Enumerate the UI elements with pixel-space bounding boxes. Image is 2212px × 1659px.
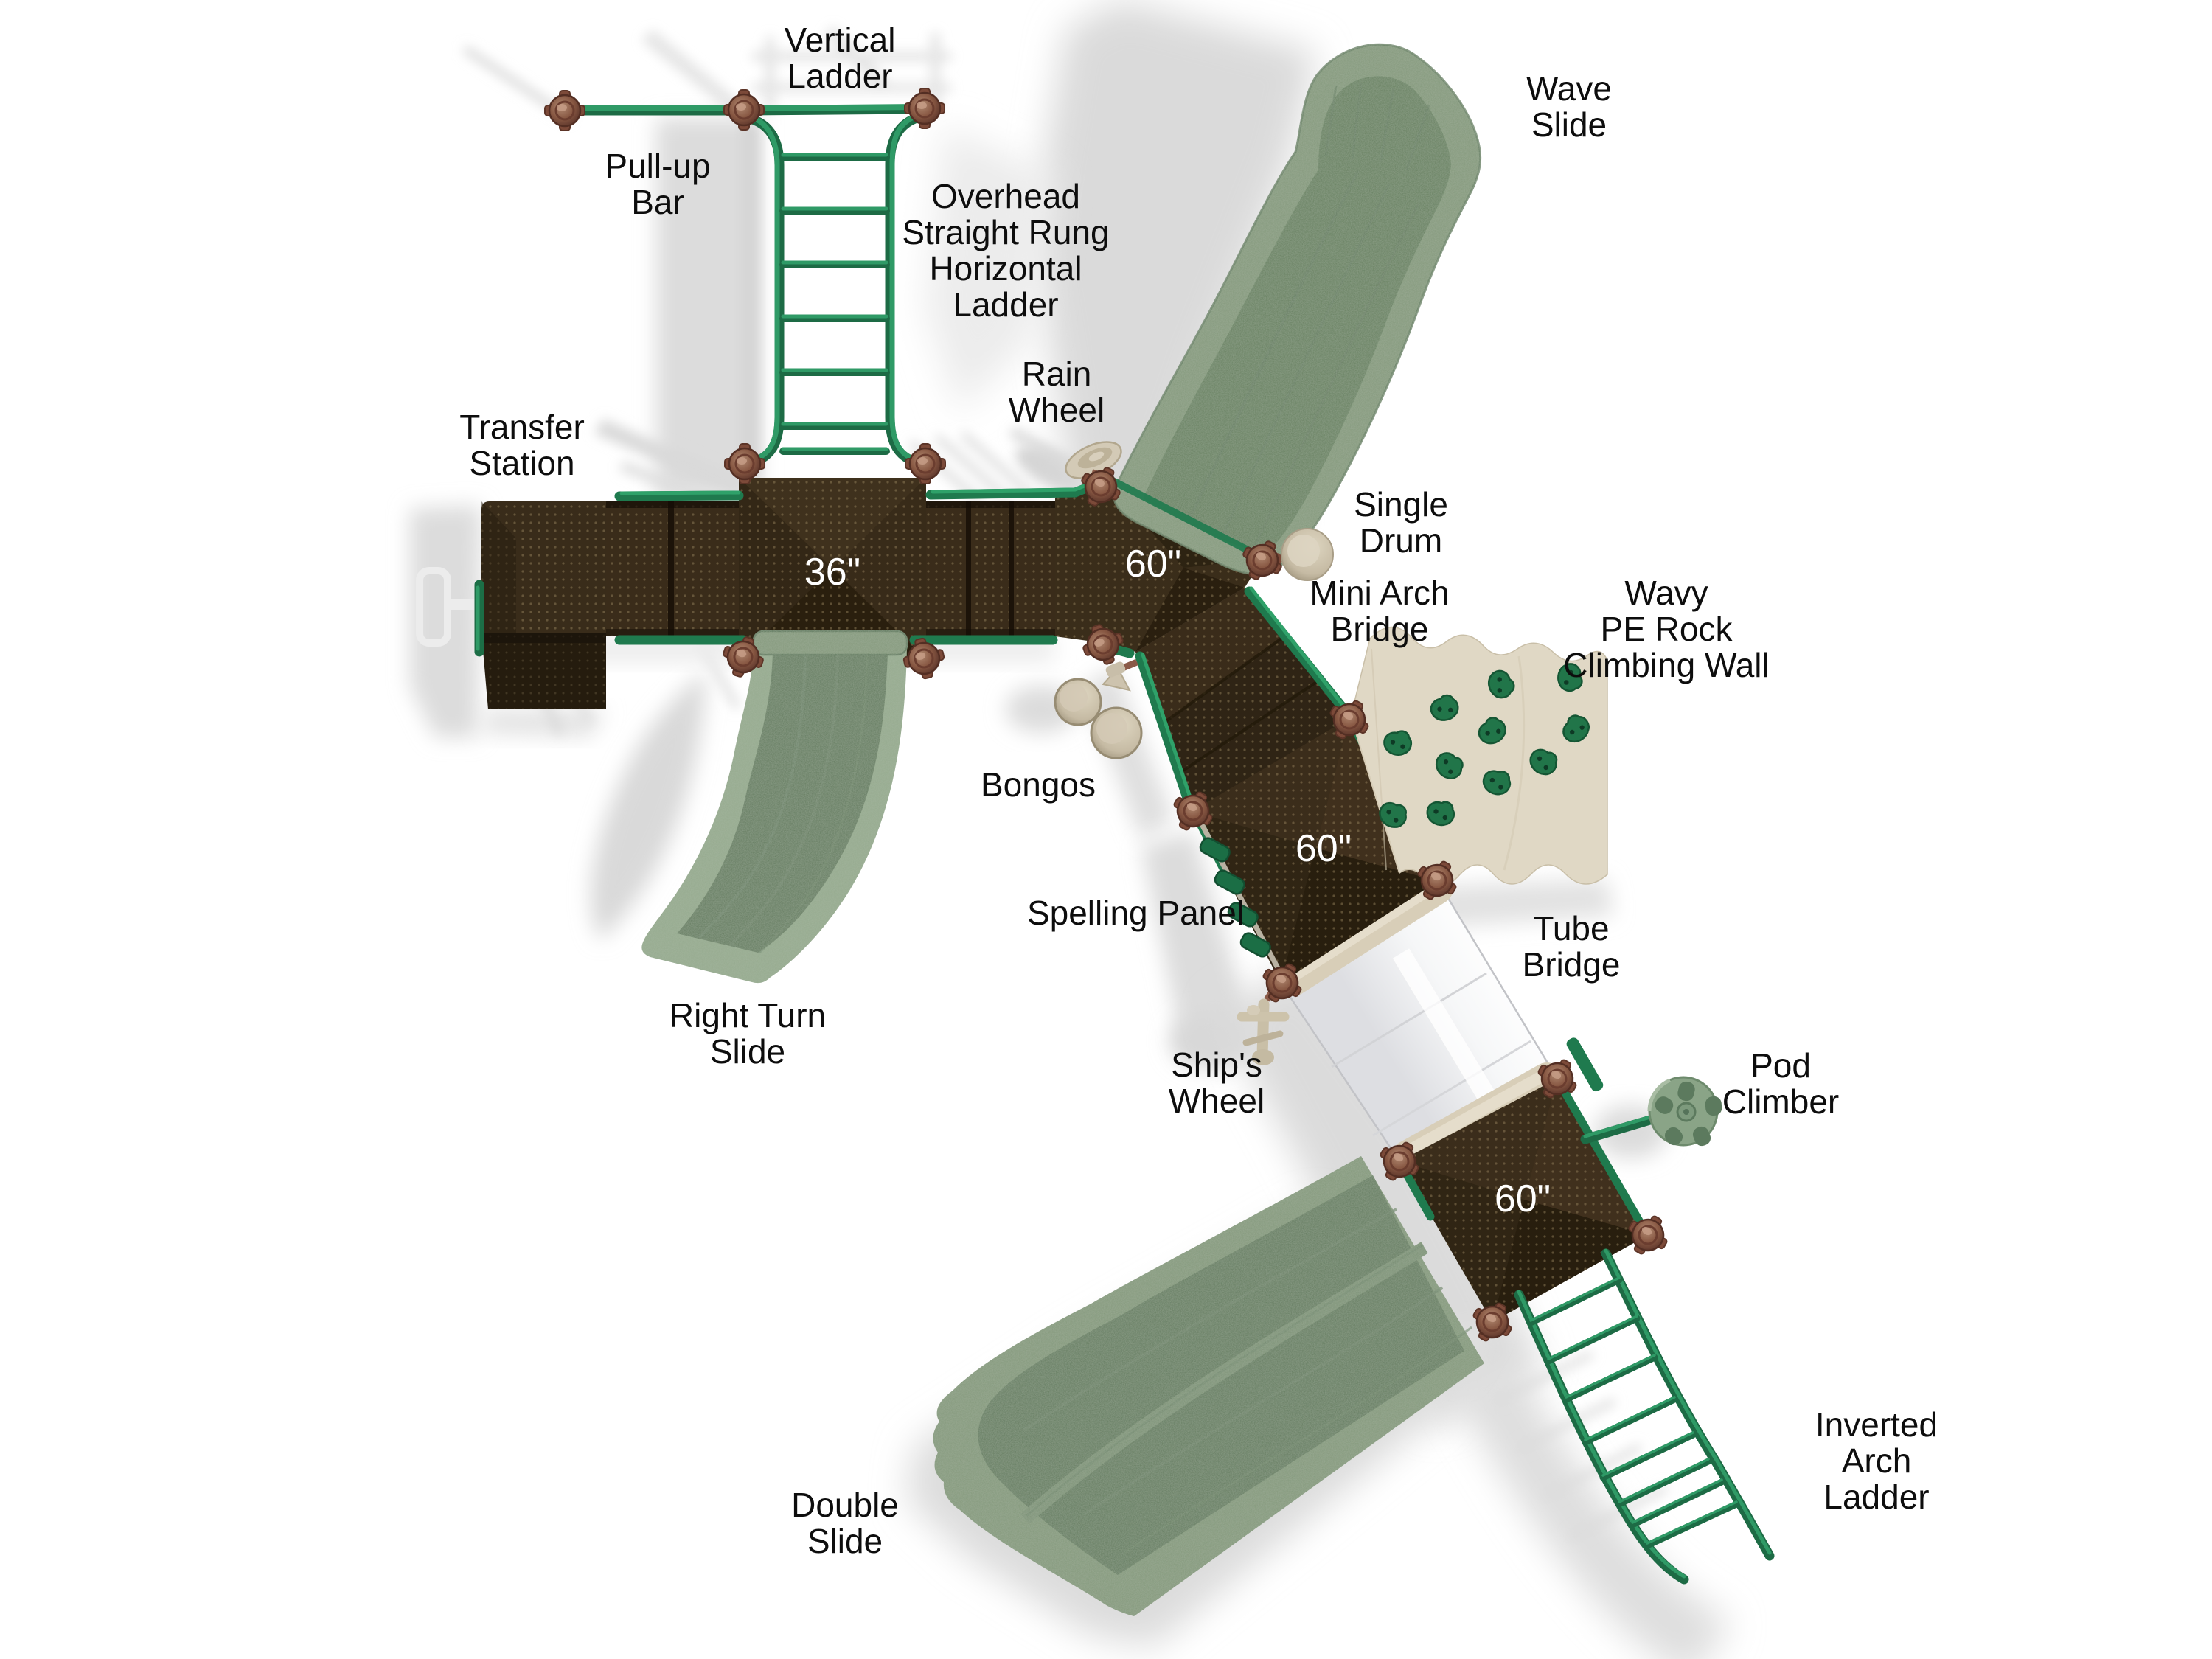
svg-text:36": 36" bbox=[804, 551, 860, 594]
svg-text:SingleDrum: SingleDrum bbox=[1354, 485, 1448, 560]
svg-text:TransferStation: TransferStation bbox=[459, 408, 585, 482]
svg-text:Ship'sWheel: Ship'sWheel bbox=[1169, 1046, 1265, 1120]
svg-text:60": 60" bbox=[1295, 827, 1352, 870]
svg-text:VerticalLadder: VerticalLadder bbox=[785, 21, 896, 95]
svg-text:DoubleSlide: DoubleSlide bbox=[791, 1486, 899, 1560]
svg-text:Right TurnSlide: Right TurnSlide bbox=[669, 996, 826, 1071]
svg-text:InvertedArchLadder: InvertedArchLadder bbox=[1815, 1405, 1938, 1516]
svg-text:60": 60" bbox=[1495, 1178, 1551, 1220]
svg-text:RainWheel: RainWheel bbox=[1009, 355, 1105, 429]
svg-text:TubeBridge: TubeBridge bbox=[1523, 909, 1621, 984]
svg-text:Bongos: Bongos bbox=[981, 765, 1096, 804]
svg-text:60": 60" bbox=[1125, 543, 1181, 585]
svg-text:Spelling Panel: Spelling Panel bbox=[1027, 894, 1244, 932]
svg-text:Mini ArchBridge: Mini ArchBridge bbox=[1310, 574, 1449, 648]
svg-text:PodClimber: PodClimber bbox=[1722, 1046, 1839, 1121]
svg-text:WavyPE RockClimbing Wall: WavyPE RockClimbing Wall bbox=[1563, 574, 1769, 684]
svg-text:WaveSlide: WaveSlide bbox=[1526, 69, 1612, 144]
